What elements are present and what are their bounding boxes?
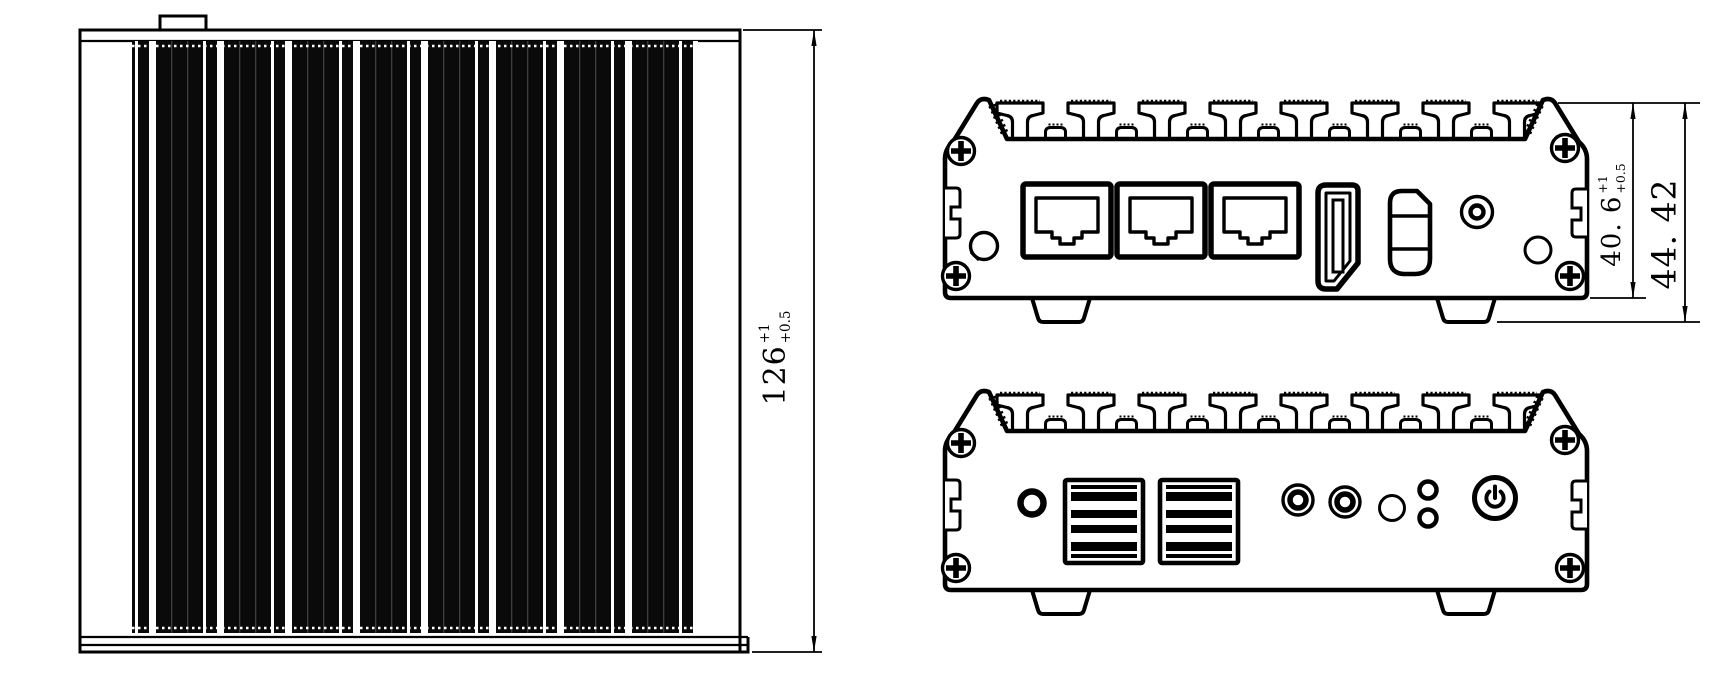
switch-cutout <box>1390 191 1430 274</box>
power-button-icon <box>1475 478 1516 519</box>
usb-stack-icon <box>1160 480 1238 563</box>
audio-jack-icon <box>1283 485 1313 515</box>
arrow-up-icon <box>811 30 816 46</box>
rj45-port-icon <box>1117 184 1205 257</box>
antenna-hole <box>1525 237 1551 263</box>
dimension-tolerance: +1 +0.5 <box>1597 163 1627 193</box>
tolerance-lower: +0.5 <box>1615 163 1628 193</box>
rj45-port-icon <box>1211 184 1299 257</box>
heatsink-fin-field <box>132 41 698 633</box>
dimension-overall-height-44-42: 44. 42 <box>1648 179 1681 290</box>
dimension-value: 126 <box>761 345 791 405</box>
drawing-svg <box>0 0 1723 689</box>
dimension-body-height-40-6: 40. 6 +1 +0.5 <box>1597 163 1627 267</box>
dimension-value: 40. 6 <box>1599 196 1625 267</box>
arrow-up-icon <box>1682 103 1687 119</box>
displayport-icon <box>1318 185 1358 289</box>
arrow-down-icon <box>1630 282 1635 298</box>
rj45-port-icon <box>1023 184 1111 257</box>
mic-hole <box>1380 496 1405 521</box>
tolerance-upper: +1 <box>759 310 773 343</box>
tolerance-upper: +1 <box>1597 163 1610 193</box>
front-panel-view <box>943 391 1588 614</box>
rear-panel-view <box>943 99 1588 322</box>
arrow-up-icon <box>1630 103 1635 119</box>
grounding-hole <box>971 233 998 261</box>
tolerance-lower: +0.5 <box>780 310 794 343</box>
arrow-down-icon <box>811 636 816 652</box>
antenna-ring <box>1021 492 1044 515</box>
dimension-value: 44. 42 <box>1648 179 1681 290</box>
led-indicator-icon <box>1420 482 1437 499</box>
dimension-height-126: 126 +1 +0.5 <box>759 310 793 405</box>
led-indicator-icon <box>1420 510 1437 527</box>
heatsink-top-view <box>80 16 748 652</box>
arrow-down-icon <box>1682 306 1687 322</box>
audio-jack-icon <box>1330 487 1360 517</box>
dc-jack-icon <box>1462 197 1493 228</box>
dimension-tolerance: +1 +0.5 <box>759 310 793 343</box>
usb-stack-icon <box>1065 480 1143 563</box>
technical-drawing-canvas: 126 +1 +0.5 40. 6 +1 +0.5 44. 42 <box>0 0 1723 689</box>
